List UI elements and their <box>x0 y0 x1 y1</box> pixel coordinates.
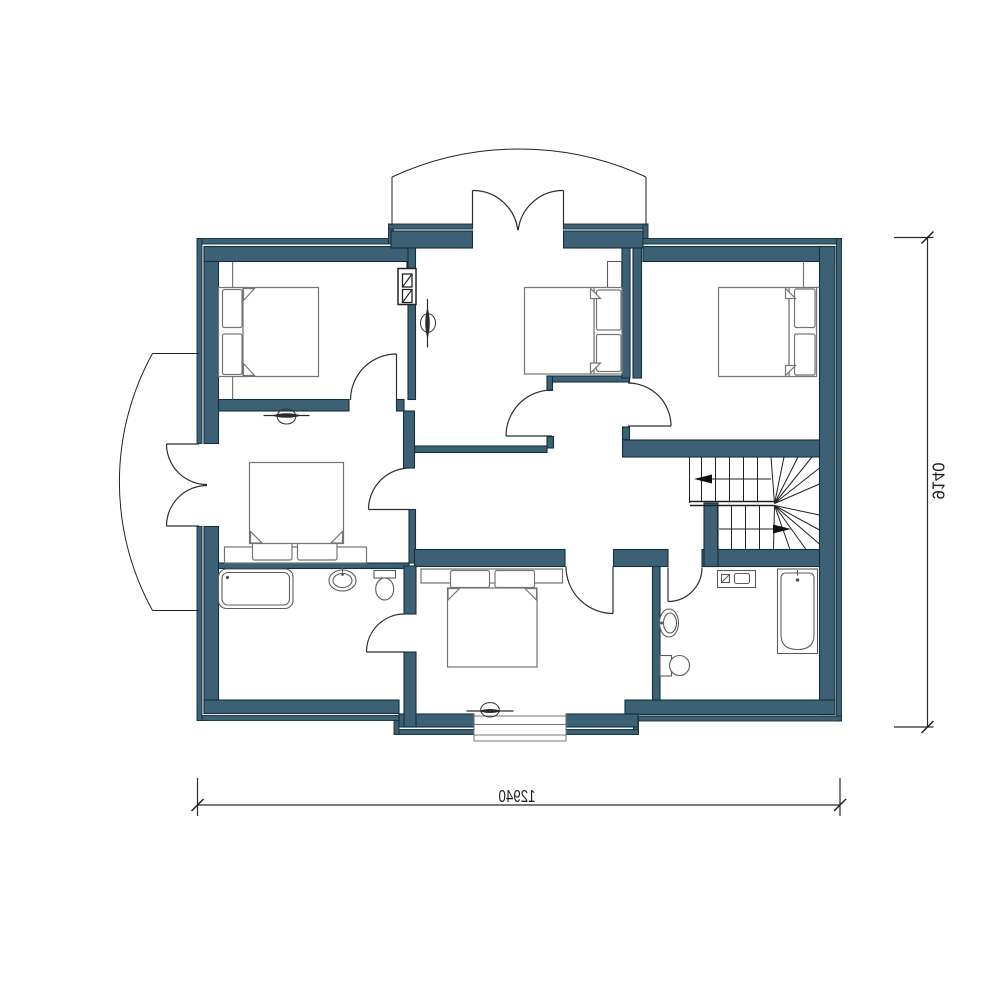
svg-text:12940: 12940 <box>498 786 535 806</box>
svg-text:9140: 9140 <box>929 462 949 499</box>
